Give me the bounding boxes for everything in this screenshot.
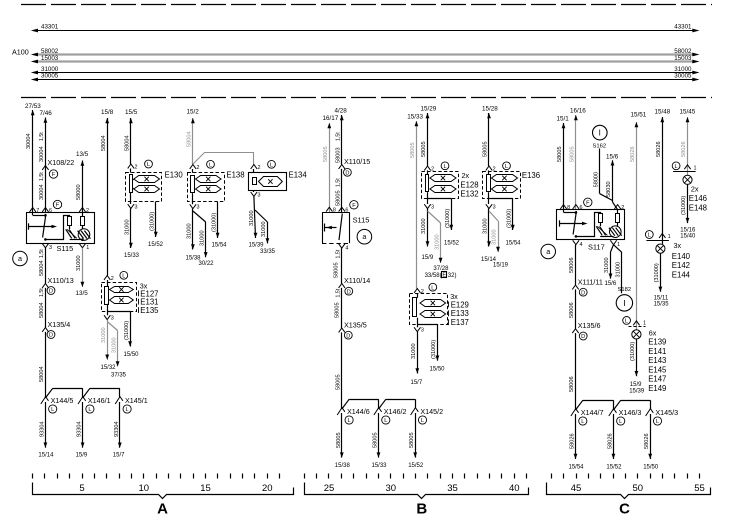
svg-text:43301: 43301 bbox=[41, 23, 59, 30]
svg-text:(31000): (31000) bbox=[445, 209, 451, 228]
svg-text:3: 3 bbox=[258, 192, 261, 198]
svg-text:15/50: 15/50 bbox=[124, 352, 140, 358]
svg-text:15/8: 15/8 bbox=[101, 109, 114, 116]
svg-text:15/28: 15/28 bbox=[482, 105, 498, 112]
svg-text:L: L bbox=[581, 419, 584, 425]
svg-text:15/6: 15/6 bbox=[606, 154, 619, 161]
svg-text:58005: 58005 bbox=[570, 146, 576, 162]
svg-text:F: F bbox=[352, 203, 356, 209]
svg-text:31000: 31000 bbox=[411, 343, 417, 359]
svg-text:L: L bbox=[656, 419, 659, 425]
svg-text:31000: 31000 bbox=[434, 234, 440, 250]
svg-text:15/14: 15/14 bbox=[38, 453, 54, 459]
svg-text:58000: 58000 bbox=[76, 184, 82, 200]
svg-text:30005: 30005 bbox=[674, 73, 692, 80]
svg-text:L: L bbox=[625, 319, 628, 325]
svg-text:58004: 58004 bbox=[39, 366, 45, 382]
svg-text:15/50: 15/50 bbox=[643, 464, 659, 470]
svg-text:L: L bbox=[505, 164, 508, 170]
svg-text:1,5t: 1,5t bbox=[336, 178, 342, 187]
svg-text:4: 4 bbox=[580, 242, 583, 248]
svg-text:31000: 31000 bbox=[200, 230, 206, 246]
svg-text:E144: E144 bbox=[672, 270, 691, 279]
svg-text:1,5t: 1,5t bbox=[39, 288, 45, 297]
svg-text:2: 2 bbox=[258, 165, 261, 171]
svg-text:X110/13: X110/13 bbox=[48, 276, 74, 285]
svg-text:58002: 58002 bbox=[41, 48, 59, 55]
svg-text:58004: 58004 bbox=[125, 135, 131, 151]
svg-text:20: 20 bbox=[262, 483, 273, 494]
svg-text:8: 8 bbox=[333, 208, 336, 214]
svg-text:E133: E133 bbox=[451, 309, 469, 318]
svg-text:58006: 58006 bbox=[569, 257, 575, 273]
svg-text:L: L bbox=[384, 418, 387, 424]
svg-text:F: F bbox=[52, 172, 56, 178]
svg-text:15/45: 15/45 bbox=[680, 109, 696, 116]
svg-text:L: L bbox=[126, 407, 129, 413]
svg-text:15/52: 15/52 bbox=[148, 242, 164, 248]
svg-text:F: F bbox=[56, 203, 60, 209]
svg-text:15/39: 15/39 bbox=[629, 388, 645, 394]
svg-text:C: C bbox=[619, 501, 630, 518]
svg-text:2: 2 bbox=[421, 289, 424, 295]
svg-text:30004: 30004 bbox=[39, 146, 45, 162]
svg-text:S115: S115 bbox=[57, 244, 74, 253]
svg-text:15/9: 15/9 bbox=[76, 453, 88, 459]
svg-text:X144/6: X144/6 bbox=[347, 407, 370, 416]
svg-text:15/7: 15/7 bbox=[113, 453, 125, 459]
svg-text:58004: 58004 bbox=[187, 131, 193, 147]
svg-text:31000: 31000 bbox=[483, 218, 489, 234]
svg-text:58005: 58005 bbox=[333, 262, 339, 278]
svg-text:X145/1: X145/1 bbox=[125, 396, 148, 405]
svg-text:L: L bbox=[270, 162, 273, 168]
svg-text:1: 1 bbox=[643, 320, 646, 326]
svg-text:31000: 31000 bbox=[492, 229, 498, 245]
svg-text:31000: 31000 bbox=[101, 327, 107, 343]
svg-text:15/39: 15/39 bbox=[249, 243, 265, 249]
svg-text:93304: 93304 bbox=[114, 421, 120, 437]
svg-text:32): 32) bbox=[448, 273, 457, 279]
svg-text:D: D bbox=[581, 290, 585, 296]
svg-text:33/58(: 33/58( bbox=[425, 273, 442, 279]
svg-text:E142: E142 bbox=[672, 261, 690, 270]
svg-text:15/48: 15/48 bbox=[655, 109, 671, 116]
svg-text:15/35: 15/35 bbox=[654, 302, 670, 308]
svg-text:2x: 2x bbox=[462, 171, 470, 180]
svg-text:15/2: 15/2 bbox=[187, 109, 200, 116]
svg-text:30/22: 30/22 bbox=[199, 261, 215, 267]
svg-text:30: 30 bbox=[385, 483, 396, 494]
svg-text:10: 10 bbox=[138, 483, 149, 494]
svg-text:58003: 58003 bbox=[336, 147, 342, 163]
svg-text:1: 1 bbox=[694, 165, 697, 171]
svg-text:58005: 58005 bbox=[557, 146, 563, 162]
svg-text:15/7: 15/7 bbox=[411, 380, 423, 386]
svg-text:1,5t: 1,5t bbox=[336, 288, 342, 297]
svg-text:13/5: 13/5 bbox=[76, 151, 89, 158]
svg-text:(31000): (31000) bbox=[431, 340, 437, 359]
svg-text:D: D bbox=[346, 333, 350, 339]
svg-text:15/33: 15/33 bbox=[372, 463, 388, 469]
svg-text:E148: E148 bbox=[689, 203, 707, 212]
svg-text:15/16: 15/16 bbox=[680, 228, 696, 234]
svg-text:15/52: 15/52 bbox=[606, 464, 622, 470]
svg-text:31000: 31000 bbox=[187, 223, 193, 239]
svg-text:X135/5: X135/5 bbox=[344, 321, 367, 330]
svg-text:58006: 58006 bbox=[569, 302, 575, 318]
svg-text:E137: E137 bbox=[451, 318, 469, 327]
svg-text:1,5t: 1,5t bbox=[39, 249, 45, 258]
svg-text:(31000): (31000) bbox=[212, 213, 218, 232]
svg-text:2: 2 bbox=[111, 276, 114, 282]
svg-text:31000: 31000 bbox=[616, 262, 622, 278]
svg-text:E135: E135 bbox=[140, 306, 159, 315]
svg-text:58004: 58004 bbox=[39, 302, 45, 318]
svg-text:X110/15: X110/15 bbox=[344, 157, 370, 166]
svg-text:15/33: 15/33 bbox=[124, 253, 140, 259]
svg-text:1,5t: 1,5t bbox=[336, 249, 342, 258]
svg-text:I: I bbox=[599, 128, 601, 137]
svg-text:3: 3 bbox=[493, 205, 496, 211]
svg-text:(31000): (31000) bbox=[124, 321, 130, 340]
svg-text:35: 35 bbox=[447, 483, 458, 494]
svg-text:4: 4 bbox=[345, 246, 348, 252]
svg-text:31000: 31000 bbox=[111, 337, 117, 353]
svg-text:E140: E140 bbox=[672, 252, 691, 261]
svg-text:L: L bbox=[421, 418, 424, 424]
svg-text:X145/3: X145/3 bbox=[655, 408, 678, 417]
svg-text:15/40: 15/40 bbox=[680, 234, 696, 240]
svg-text:(31000): (31000) bbox=[507, 209, 513, 228]
svg-text:2: 2 bbox=[135, 165, 138, 171]
svg-text:X146/3: X146/3 bbox=[619, 408, 642, 417]
svg-text:15003: 15003 bbox=[41, 55, 59, 62]
svg-text:(31000): (31000) bbox=[630, 342, 636, 361]
svg-text:X144/5: X144/5 bbox=[51, 396, 74, 405]
svg-text:58026: 58026 bbox=[630, 146, 636, 162]
svg-text:58006: 58006 bbox=[569, 376, 575, 392]
svg-text:X146/1: X146/1 bbox=[88, 396, 111, 405]
svg-text:58002: 58002 bbox=[674, 48, 692, 55]
svg-text:58005: 58005 bbox=[323, 146, 329, 162]
svg-text:15/54: 15/54 bbox=[506, 241, 522, 247]
svg-text:E134: E134 bbox=[289, 171, 308, 180]
svg-text:6x: 6x bbox=[649, 329, 657, 338]
svg-text:X144/7: X144/7 bbox=[581, 408, 604, 417]
svg-text:1,5t: 1,5t bbox=[39, 172, 45, 181]
svg-text:7/46: 7/46 bbox=[40, 110, 53, 117]
svg-text:E138: E138 bbox=[226, 171, 244, 180]
svg-text:E130: E130 bbox=[165, 171, 184, 180]
svg-text:3x: 3x bbox=[674, 241, 682, 250]
svg-text:2: 2 bbox=[621, 205, 624, 211]
svg-text:L: L bbox=[443, 164, 446, 170]
svg-text:43301: 43301 bbox=[674, 23, 692, 30]
svg-text:3: 3 bbox=[431, 205, 434, 211]
svg-text:(31000): (31000) bbox=[150, 212, 156, 231]
svg-text:X135/4: X135/4 bbox=[48, 320, 71, 329]
svg-text:6: 6 bbox=[580, 205, 583, 211]
svg-text:58005: 58005 bbox=[421, 141, 427, 157]
svg-text:15/52: 15/52 bbox=[444, 241, 460, 247]
svg-text:L: L bbox=[88, 407, 91, 413]
svg-text:15/50: 15/50 bbox=[430, 366, 446, 372]
svg-text:a: a bbox=[18, 254, 22, 263]
svg-text:93304: 93304 bbox=[77, 421, 83, 437]
svg-text:L: L bbox=[147, 162, 150, 168]
svg-text:E146: E146 bbox=[689, 194, 707, 203]
svg-text:7: 7 bbox=[36, 208, 39, 214]
svg-text:58005: 58005 bbox=[483, 141, 489, 157]
svg-text:L: L bbox=[431, 285, 434, 291]
svg-text:I: I bbox=[623, 298, 625, 308]
svg-text:15/1: 15/1 bbox=[557, 116, 570, 123]
svg-text:37/35: 37/35 bbox=[111, 372, 127, 378]
svg-text:31000: 31000 bbox=[125, 219, 131, 235]
svg-text:X135/6: X135/6 bbox=[578, 321, 601, 330]
svg-text:X110/14: X110/14 bbox=[344, 276, 370, 285]
svg-text:S115: S115 bbox=[353, 215, 370, 224]
svg-text:58004: 58004 bbox=[39, 260, 45, 276]
svg-text:15/6: 15/6 bbox=[605, 281, 617, 287]
svg-text:15/9: 15/9 bbox=[422, 255, 434, 261]
svg-text:15/19: 15/19 bbox=[493, 263, 509, 269]
svg-text:2x: 2x bbox=[691, 185, 699, 194]
svg-text:2: 2 bbox=[86, 208, 89, 214]
svg-text:58005: 58005 bbox=[409, 432, 415, 448]
svg-text:58026: 58026 bbox=[656, 141, 662, 157]
svg-text:E139: E139 bbox=[648, 338, 666, 347]
svg-text:E128: E128 bbox=[460, 180, 478, 189]
svg-text:D: D bbox=[347, 289, 351, 295]
svg-text:D: D bbox=[49, 289, 53, 295]
svg-text:15/54: 15/54 bbox=[212, 243, 228, 249]
svg-text:13/5: 13/5 bbox=[76, 290, 89, 297]
svg-text:93304: 93304 bbox=[39, 421, 45, 437]
svg-text:58005: 58005 bbox=[336, 432, 342, 448]
svg-text:L: L bbox=[619, 419, 622, 425]
svg-text:15/29: 15/29 bbox=[421, 105, 437, 112]
svg-text:31000: 31000 bbox=[76, 255, 82, 271]
svg-text:3: 3 bbox=[111, 316, 114, 322]
svg-text:25: 25 bbox=[324, 483, 335, 494]
svg-text:15/52: 15/52 bbox=[408, 463, 424, 469]
svg-text:A100: A100 bbox=[12, 48, 29, 57]
svg-text:30005: 30005 bbox=[41, 73, 59, 80]
svg-text:3: 3 bbox=[421, 328, 424, 334]
svg-text:L: L bbox=[648, 233, 651, 239]
svg-text:45: 45 bbox=[571, 483, 582, 494]
svg-text:L: L bbox=[348, 418, 351, 424]
svg-text:15/11: 15/11 bbox=[654, 296, 669, 302]
svg-text:F: F bbox=[586, 200, 590, 206]
svg-text:58026: 58026 bbox=[644, 433, 650, 449]
svg-text:33/35: 33/35 bbox=[260, 249, 276, 255]
svg-text:40: 40 bbox=[509, 483, 520, 494]
svg-text:6: 6 bbox=[345, 208, 348, 214]
svg-text:X145/2: X145/2 bbox=[420, 407, 443, 416]
svg-text:E149: E149 bbox=[648, 384, 666, 393]
svg-text:3: 3 bbox=[197, 205, 200, 211]
svg-text:L: L bbox=[675, 164, 678, 170]
svg-text:A: A bbox=[157, 501, 168, 518]
svg-text:8: 8 bbox=[567, 205, 570, 211]
svg-text:31000: 31000 bbox=[249, 210, 255, 226]
svg-text:15/33: 15/33 bbox=[407, 113, 423, 120]
svg-text:58000: 58000 bbox=[594, 172, 600, 188]
svg-text:58026: 58026 bbox=[681, 141, 687, 157]
svg-text:16/17: 16/17 bbox=[323, 115, 339, 122]
svg-text:4/28: 4/28 bbox=[335, 108, 348, 115]
svg-text:15/54: 15/54 bbox=[569, 464, 585, 470]
svg-text:16/16: 16/16 bbox=[570, 108, 586, 115]
svg-text:E145: E145 bbox=[648, 365, 667, 374]
svg-text:31000: 31000 bbox=[604, 257, 610, 273]
svg-text:D: D bbox=[581, 334, 585, 340]
svg-text:D: D bbox=[345, 170, 349, 176]
svg-text:1,5t: 1,5t bbox=[336, 132, 342, 141]
svg-text:X108/22: X108/22 bbox=[48, 158, 75, 167]
svg-text:6: 6 bbox=[49, 208, 52, 214]
svg-text:58005: 58005 bbox=[410, 142, 416, 158]
svg-text:15/9: 15/9 bbox=[630, 382, 642, 388]
svg-text:15/38: 15/38 bbox=[335, 463, 351, 469]
svg-text:a: a bbox=[546, 247, 550, 256]
svg-text:S117: S117 bbox=[588, 242, 605, 251]
svg-text:15/32: 15/32 bbox=[101, 365, 117, 371]
svg-text:1: 1 bbox=[617, 242, 620, 248]
svg-text:E143: E143 bbox=[648, 356, 666, 365]
svg-text:1: 1 bbox=[86, 245, 89, 251]
svg-text:58026: 58026 bbox=[570, 433, 576, 449]
svg-text:58005: 58005 bbox=[336, 190, 342, 206]
svg-text:55: 55 bbox=[694, 483, 705, 494]
svg-text:L: L bbox=[209, 162, 212, 168]
svg-text:1,5t: 1,5t bbox=[39, 132, 45, 141]
svg-text:5: 5 bbox=[79, 483, 84, 494]
svg-text:S182: S182 bbox=[618, 287, 632, 293]
svg-text:3: 3 bbox=[135, 205, 138, 211]
svg-text:58005: 58005 bbox=[373, 432, 379, 448]
svg-text:E132: E132 bbox=[460, 189, 478, 198]
svg-text:58005: 58005 bbox=[336, 374, 342, 390]
svg-text:15: 15 bbox=[200, 483, 211, 494]
svg-text:58005: 58005 bbox=[335, 302, 341, 318]
svg-text:X111/11: X111/11 bbox=[578, 278, 603, 287]
svg-text:15003: 15003 bbox=[674, 55, 692, 62]
svg-text:E141: E141 bbox=[648, 347, 666, 356]
svg-text:58004: 58004 bbox=[101, 135, 107, 151]
svg-text:27/53: 27/53 bbox=[25, 103, 41, 110]
svg-text:31000: 31000 bbox=[421, 218, 427, 234]
svg-text:(31000): (31000) bbox=[654, 263, 660, 282]
svg-text:(31000): (31000) bbox=[681, 196, 687, 215]
svg-text:X146/2: X146/2 bbox=[384, 407, 407, 416]
svg-text:58030: 58030 bbox=[606, 181, 612, 197]
svg-text:58026: 58026 bbox=[607, 433, 613, 449]
svg-text:30004: 30004 bbox=[39, 184, 45, 200]
svg-text:50: 50 bbox=[632, 483, 643, 494]
svg-text:30004: 30004 bbox=[26, 133, 32, 149]
svg-text:15/51: 15/51 bbox=[631, 111, 647, 118]
svg-text:E136: E136 bbox=[522, 171, 540, 180]
svg-text:E147: E147 bbox=[648, 375, 666, 384]
svg-text:L: L bbox=[51, 407, 54, 413]
svg-text:15/5: 15/5 bbox=[125, 109, 138, 116]
svg-text:a: a bbox=[362, 232, 366, 241]
svg-text:D: D bbox=[49, 333, 53, 339]
svg-text:2: 2 bbox=[197, 165, 200, 171]
svg-text:1: 1 bbox=[668, 234, 671, 240]
svg-text:31000: 31000 bbox=[261, 221, 267, 237]
svg-text:B: B bbox=[416, 501, 427, 518]
svg-text:L: L bbox=[122, 273, 125, 279]
svg-text:3: 3 bbox=[49, 245, 52, 251]
svg-text:E129: E129 bbox=[451, 300, 469, 309]
